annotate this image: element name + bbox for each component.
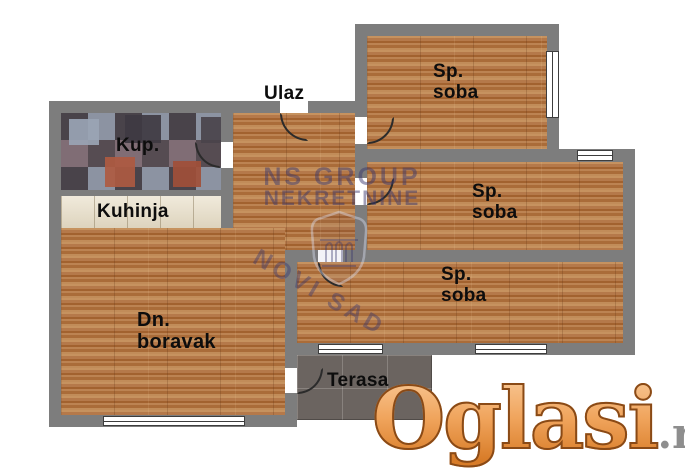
oglasi-logo: Oglasi.rs	[372, 377, 685, 461]
wall-outer-left	[49, 101, 61, 427]
label-kitchen: Kuhinja	[97, 201, 169, 222]
label-bathroom: Kup.	[116, 135, 159, 156]
window-symbol	[577, 150, 613, 161]
door-opening-bedroom-top	[355, 117, 367, 144]
door-opening-terrace	[285, 368, 297, 393]
wall-top	[49, 101, 367, 113]
window-symbol	[318, 344, 383, 354]
watermark-agency-subtitle: NEKRETNINE	[258, 187, 426, 211]
label-bedroom-middle: Sp. soba	[472, 181, 518, 223]
bathroom-tile-accent	[173, 161, 201, 187]
watermark-crest-icon	[308, 210, 370, 286]
wall-bedroom-top-top	[355, 24, 559, 36]
window-symbol	[475, 344, 547, 354]
bathroom-tile-accent	[69, 119, 99, 145]
label-bedroom-bottom: Sp. soba	[441, 264, 487, 306]
window-symbol	[103, 416, 245, 426]
floor-plan-image: NS GROUP NEKRETNINE NOVI SAD Ulaz Kup. K…	[0, 0, 685, 476]
wall-bathroom-kitchen	[61, 190, 221, 196]
window-symbol	[546, 51, 559, 118]
door-opening-bathroom	[221, 142, 233, 168]
label-bedroom-top: Sp. soba	[433, 61, 479, 103]
label-living-room: Dn. boravak	[137, 309, 216, 353]
oglasi-logo-tld: .rs	[657, 409, 685, 458]
label-entrance: Ulaz	[264, 83, 304, 104]
bathroom-tile-accent	[105, 157, 135, 187]
oglasi-logo-wordmark: Oglasi	[372, 369, 657, 468]
bathroom-tile-accent	[201, 117, 221, 143]
